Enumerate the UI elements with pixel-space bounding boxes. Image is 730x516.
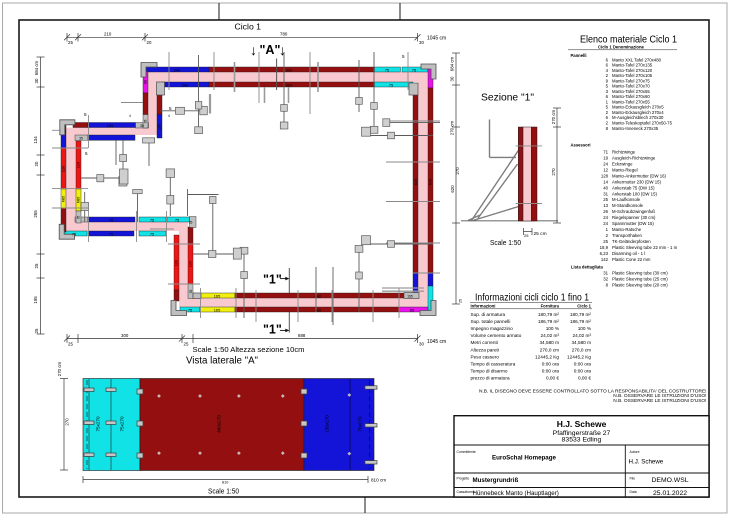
svg-text:Ankermutter 230 (DW 15): Ankermutter 230 (DW 15) (612, 179, 662, 184)
svg-text:71: 71 (603, 150, 608, 155)
svg-text:134: 134 (33, 136, 38, 144)
svg-text:128: 128 (601, 173, 609, 178)
svg-text:N.B. OSSERVARE LE ISTRUZIONI D: N.B. OSSERVARE LE ISTRUZIONI D'USO! (613, 398, 706, 404)
svg-text:0,00 €: 0,00 € (578, 376, 591, 381)
svg-text:Manto XXL Tafel 270x480: Manto XXL Tafel 270x480 (612, 57, 662, 62)
svg-text:12: 12 (603, 167, 608, 172)
svg-text:TK-Geländerpfosten: TK-Geländerpfosten (612, 239, 651, 244)
svg-text:35: 35 (140, 124, 144, 128)
svg-text:24,02 m³: 24,02 m³ (573, 333, 592, 338)
svg-text:120: 120 (76, 161, 81, 168)
svg-text:Peso cassero: Peso cassero (471, 354, 500, 359)
svg-text:75: 75 (385, 67, 389, 72)
svg-text:600: 600 (286, 67, 293, 72)
svg-text:Mustergrundriß: Mustergrundriß (473, 477, 519, 484)
svg-text:24: 24 (603, 215, 608, 220)
svg-text:120: 120 (61, 165, 66, 172)
svg-text:Scale 1:50 Altezza sezione 1: Scale 1:50 Altezza sezione 10cm (193, 345, 305, 354)
svg-text:prezzo di armatura: prezzo di armatura (471, 376, 510, 381)
svg-text:Richtzwinge: Richtzwinge (612, 150, 636, 155)
svg-text:35: 35 (189, 290, 193, 294)
svg-text:Ankerstab 75 (DW 15): Ankerstab 75 (DW 15) (612, 185, 655, 190)
svg-text:180,79 m²: 180,79 m² (538, 312, 560, 317)
svg-text:Fornitura: Fornitura (541, 303, 560, 308)
svg-text:460x270: 460x270 (217, 415, 222, 433)
svg-text:26: 26 (603, 209, 608, 214)
svg-text:Elenco materiale Ciclo 1: Elenco materiale Ciclo 1 (580, 34, 677, 46)
svg-text:↓: ↓ (279, 42, 286, 58)
svg-text:Manto-Tafel 270x55: Manto-Tafel 270x55 (612, 99, 650, 104)
svg-text:165: 165 (214, 294, 221, 299)
svg-text:135: 135 (158, 124, 162, 130)
svg-text:4: 4 (168, 114, 170, 118)
svg-text:6,23: 6,23 (600, 251, 609, 256)
svg-text:H.J. Schewe: H.J. Schewe (557, 419, 607, 429)
svg-text:Manto-Tafel 270x105: Manto-Tafel 270x105 (612, 73, 653, 78)
svg-text:Tempo di casseratura: Tempo di casseratura (471, 361, 516, 366)
svg-text:70x270: 70x270 (358, 416, 363, 432)
svg-text:Committente: Committente (457, 450, 476, 454)
svg-text:EuroSchal Homepage: EuroSchal Homepage (492, 455, 557, 462)
svg-text:780: 780 (280, 32, 288, 37)
svg-text:25 cm: 25 cm (534, 231, 547, 237)
svg-text:270,0 cm: 270,0 cm (572, 347, 591, 352)
svg-text:31: 31 (603, 271, 608, 276)
svg-text:0:00 ora: 0:00 ora (542, 368, 560, 373)
svg-text:18,9: 18,9 (600, 245, 609, 250)
svg-text:35: 35 (144, 120, 148, 124)
svg-text:5: 5 (85, 151, 88, 156)
svg-text:5: 5 (402, 54, 405, 59)
svg-text:20: 20 (34, 161, 39, 166)
svg-text:Lista dettagliata: Lista dettagliata (571, 265, 604, 270)
svg-text:25: 25 (34, 328, 39, 333)
svg-text:Vista laterale "A": Vista laterale "A" (186, 356, 258, 367)
svg-text:75: 75 (412, 67, 416, 72)
svg-text:"A": "A" (260, 43, 281, 57)
svg-text:Sup. totale pannelli: Sup. totale pannelli (471, 319, 511, 324)
svg-text:210: 210 (104, 32, 112, 37)
svg-text:83533 Edling: 83533 Edling (562, 437, 602, 444)
svg-text:75x270: 75x270 (96, 416, 101, 432)
svg-text:620: 620 (413, 178, 418, 185)
svg-text:30: 30 (419, 342, 424, 347)
svg-text:75x270: 75x270 (120, 416, 125, 432)
svg-text:165: 165 (407, 294, 413, 298)
svg-text:25: 25 (524, 233, 529, 238)
svg-text:40: 40 (603, 185, 608, 190)
svg-text:195: 195 (33, 296, 38, 304)
svg-text:255: 255 (33, 210, 38, 218)
svg-text:35: 35 (77, 216, 81, 220)
svg-text:25: 25 (68, 342, 73, 347)
svg-text:270 cm: 270 cm (57, 361, 62, 376)
svg-text:Disarming oil - 1 l: Disarming oil - 1 l (612, 251, 645, 256)
svg-text:20: 20 (147, 40, 152, 45)
svg-text:24: 24 (603, 221, 608, 226)
svg-text:135: 135 (107, 123, 114, 128)
svg-text:Manto-Riegel: Manto-Riegel (612, 167, 638, 172)
svg-text:888: 888 (298, 333, 306, 338)
svg-text:M-Standkonsole: M-Standkonsole (612, 203, 644, 208)
svg-text:120: 120 (188, 260, 193, 267)
svg-text:0:00 ora: 0:00 ora (574, 368, 592, 373)
svg-text:Manto-Tafel 270x120: Manto-Tafel 270x120 (612, 68, 653, 73)
svg-text:25: 25 (34, 263, 39, 268)
svg-text:270 cm: 270 cm (551, 109, 556, 124)
svg-text:30: 30 (419, 40, 424, 45)
svg-text:Manto-Ankermutter (DW 16): Manto-Ankermutter (DW 16) (612, 173, 667, 178)
svg-text:Sup. di armatura: Sup. di armatura (471, 312, 506, 317)
svg-text:Progetto: Progetto (457, 477, 470, 481)
svg-text:684 cm: 684 cm (34, 60, 39, 75)
svg-text:File: File (630, 477, 636, 481)
svg-text:186,79 m²: 186,79 m² (538, 319, 560, 324)
svg-text:34,580 m: 34,580 m (571, 340, 591, 345)
svg-text:Transporthaken: Transporthaken (612, 233, 643, 238)
svg-text:620: 620 (428, 178, 433, 185)
svg-text:Spannmutter (DW 15): Spannmutter (DW 15) (612, 221, 654, 226)
svg-text:Ankerstab 100 (DW 15): Ankerstab 100 (DW 15) (612, 191, 657, 196)
svg-text:Plastic Sleeving tube 22 mm -: Plastic Sleeving tube 22 mm - 1 m (612, 245, 678, 250)
svg-text:Plastic Sleeving tube (25 cm): Plastic Sleeving tube (25 cm) (612, 277, 668, 282)
svg-text:810: 810 (222, 481, 228, 485)
svg-text:186,79 m²: 186,79 m² (570, 319, 592, 324)
svg-text:Plastic Sleeving tube (30 cm): Plastic Sleeving tube (30 cm) (612, 271, 668, 276)
svg-text:Manto-Ratsche: Manto-Ratsche (612, 227, 642, 232)
svg-text:180,79 m²: 180,79 m² (570, 312, 592, 317)
svg-text:25: 25 (68, 40, 73, 45)
svg-text:M-Ausgleichsblech 270x30: M-Ausgleichsblech 270x30 (612, 115, 664, 120)
svg-text:75: 75 (389, 82, 393, 87)
svg-text:Ciclo 1: Ciclo 1 (577, 303, 591, 308)
svg-text:100 %: 100 % (578, 326, 591, 331)
svg-text:Plastic Sleeving tube (20 cm): Plastic Sleeving tube (20 cm) (612, 282, 668, 287)
svg-text:1045 cm: 1045 cm (427, 36, 446, 42)
svg-text:30: 30 (34, 78, 39, 83)
svg-text:34,580 m: 34,580 m (539, 340, 559, 345)
svg-text:Manto-Teleskoptafel 270x50-75: Manto-Teleskoptafel 270x50-75 (612, 121, 673, 126)
svg-text:14: 14 (603, 179, 608, 184)
svg-text:Hünnebeck Manto (Hauptlager): Hünnebeck Manto (Hauptlager) (473, 490, 559, 497)
svg-text:75: 75 (175, 217, 179, 222)
svg-text:"1": "1" (263, 323, 282, 337)
svg-text:↓: ↓ (250, 42, 257, 58)
svg-text:65: 65 (410, 308, 414, 313)
svg-text:810 cm: 810 cm (371, 478, 386, 483)
svg-text:270,0 cm: 270,0 cm (540, 347, 559, 352)
svg-text:Ciclo 1: Ciclo 1 (235, 22, 262, 32)
svg-text:12445,2 Kg: 12445,2 Kg (567, 354, 591, 359)
svg-text:24,02 m³: 24,02 m³ (541, 333, 560, 338)
svg-text:Manto-Eckausgleich 270x5: Manto-Eckausgleich 270x5 (612, 105, 664, 110)
svg-text:M85: M85 (77, 197, 81, 204)
svg-text:Eckzwinge: Eckzwinge (612, 161, 633, 166)
svg-text:0:00 ora: 0:00 ora (574, 361, 592, 366)
svg-text:35: 35 (189, 221, 193, 225)
svg-text:35: 35 (79, 137, 83, 141)
svg-text:"1": "1" (263, 273, 282, 287)
svg-text:75: 75 (109, 232, 113, 237)
svg-text:H.J. Schewe: H.J. Schewe (629, 459, 664, 466)
svg-text:30: 30 (450, 76, 455, 81)
svg-text:100 %: 100 % (546, 326, 559, 331)
svg-text:4: 4 (129, 114, 131, 118)
svg-text:Autore: Autore (630, 450, 640, 454)
svg-text:12445,2 Kg: 12445,2 Kg (535, 354, 559, 359)
svg-text:Riegelspanner (30 cm): Riegelspanner (30 cm) (612, 215, 656, 220)
svg-text:Ausgleich-Richtzwinge: Ausgleich-Richtzwinge (612, 156, 656, 161)
svg-text:Ciclo 1 Denominazione: Ciclo 1 Denominazione (598, 45, 645, 50)
svg-text:75: 75 (188, 308, 192, 313)
svg-text:M-Schraubzwingenfuß: M-Schraubzwingenfuß (612, 209, 655, 214)
svg-text:Data: Data (630, 490, 637, 494)
svg-text:25: 25 (603, 197, 608, 202)
svg-text:Informazioni cicli ciclo 1 fi: Informazioni cicli ciclo 1 fino 1 (475, 292, 589, 304)
svg-text:75: 75 (72, 232, 76, 237)
svg-text:120: 120 (174, 259, 179, 266)
svg-text:25: 25 (459, 299, 463, 303)
svg-text:75: 75 (150, 217, 154, 222)
svg-text:684 cm: 684 cm (450, 56, 455, 71)
svg-text:13: 13 (603, 203, 608, 208)
svg-text:DEMO.WSL: DEMO.WSL (652, 477, 689, 484)
svg-text:Informazioni: Informazioni (471, 303, 496, 308)
svg-text:31: 31 (603, 191, 608, 196)
svg-text:Manto-Tafel 270x65: Manto-Tafel 270x65 (612, 89, 650, 94)
svg-text:0,00 €: 0,00 € (546, 376, 559, 381)
svg-text:5: 5 (169, 106, 172, 111)
svg-text:M-Laufkonsole: M-Laufkonsole (612, 197, 641, 202)
svg-text:600: 600 (286, 82, 293, 87)
svg-text:Tempo di disarmo: Tempo di disarmo (471, 368, 508, 373)
svg-text:240: 240 (174, 67, 181, 72)
svg-text:Volume cemento armato: Volume cemento armato (471, 333, 522, 338)
svg-text:1045 cm: 1045 cm (427, 339, 446, 345)
svg-text:Manto-Tafel 270x70: Manto-Tafel 270x70 (612, 84, 650, 89)
svg-text:Scale 1:50: Scale 1:50 (490, 238, 521, 247)
svg-text:0:00 ora: 0:00 ora (542, 361, 560, 366)
svg-text:Manto-Inneneck 270x35: Manto-Inneneck 270x35 (612, 126, 659, 131)
svg-text:75: 75 (109, 217, 113, 222)
svg-text:Plastic Cone 22 mm: Plastic Cone 22 mm (612, 257, 651, 262)
svg-text:165: 165 (214, 308, 221, 313)
svg-text:270: 270 (65, 418, 70, 426)
svg-text:270: 270 (551, 168, 556, 176)
svg-text:300: 300 (121, 333, 129, 338)
svg-text:25: 25 (603, 239, 608, 244)
svg-text:142: 142 (601, 257, 609, 262)
svg-text:Scale 1:50: Scale 1:50 (208, 487, 239, 496)
svg-text:Sezione "1": Sezione "1" (481, 92, 534, 104)
svg-text:Impegno magazzino: Impegno magazzino (471, 326, 514, 331)
svg-text:135x270: 135x270 (325, 415, 330, 433)
svg-text:Assessori: Assessori (571, 143, 591, 148)
svg-text:Pannelli: Pannelli (571, 53, 587, 58)
svg-text:19: 19 (603, 156, 608, 161)
svg-text:5: 5 (84, 112, 87, 117)
svg-text:M85: M85 (62, 196, 66, 203)
svg-text:Metri correnti: Metri correnti (471, 340, 498, 345)
svg-text:24: 24 (603, 161, 608, 166)
svg-text:32: 32 (603, 277, 608, 282)
svg-text:75: 75 (150, 232, 154, 237)
svg-text:25.01.2022: 25.01.2022 (653, 490, 687, 497)
svg-text:25: 25 (184, 342, 189, 347)
svg-text:270: 270 (455, 167, 460, 175)
svg-text:620: 620 (450, 185, 455, 193)
svg-text:270 cm: 270 cm (450, 120, 455, 135)
svg-text:240: 240 (182, 82, 189, 87)
svg-text:Altezza pareti: Altezza pareti (471, 347, 499, 352)
